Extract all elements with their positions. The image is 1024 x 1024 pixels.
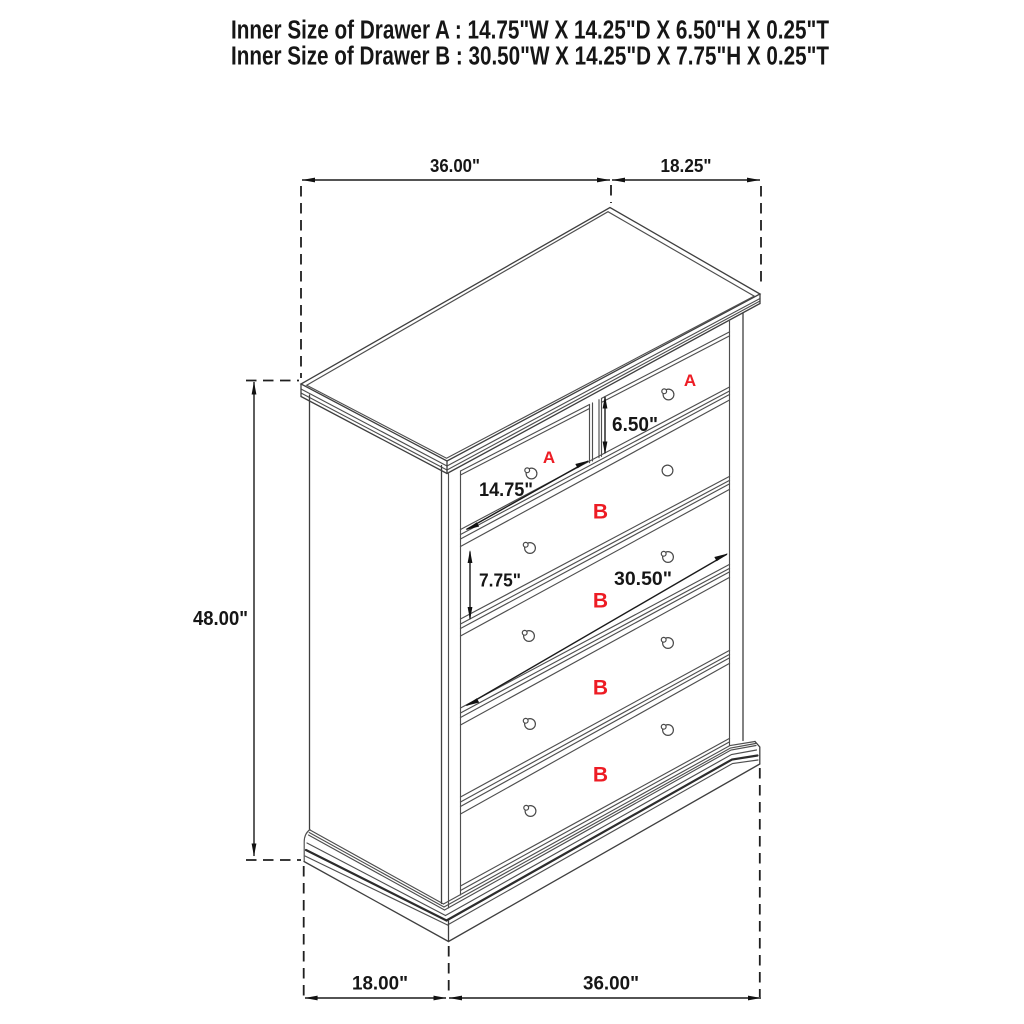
svg-text:6.50": 6.50" — [612, 413, 658, 436]
svg-text:30.50": 30.50" — [614, 568, 672, 590]
svg-text:A: A — [684, 371, 696, 390]
svg-text:Inner Size of Drawer B : 30.50: Inner Size of Drawer B : 30.50"W X 14.25… — [231, 42, 829, 70]
svg-text:36.00": 36.00" — [583, 973, 639, 995]
svg-text:B: B — [593, 501, 608, 524]
svg-text:18.25": 18.25" — [661, 155, 712, 176]
svg-text:B: B — [593, 764, 608, 787]
svg-text:7.75": 7.75" — [479, 570, 521, 591]
svg-text:Inner Size of Drawer A : 14.75: Inner Size of Drawer A : 14.75"W X 14.25… — [231, 17, 829, 45]
svg-text:48.00": 48.00" — [193, 608, 248, 630]
svg-text:A: A — [543, 448, 555, 467]
svg-text:36.00": 36.00" — [430, 155, 480, 176]
svg-text:B: B — [593, 590, 608, 613]
svg-text:B: B — [593, 677, 608, 700]
svg-text:18.00": 18.00" — [352, 973, 408, 995]
svg-text:14.75": 14.75" — [479, 479, 533, 501]
